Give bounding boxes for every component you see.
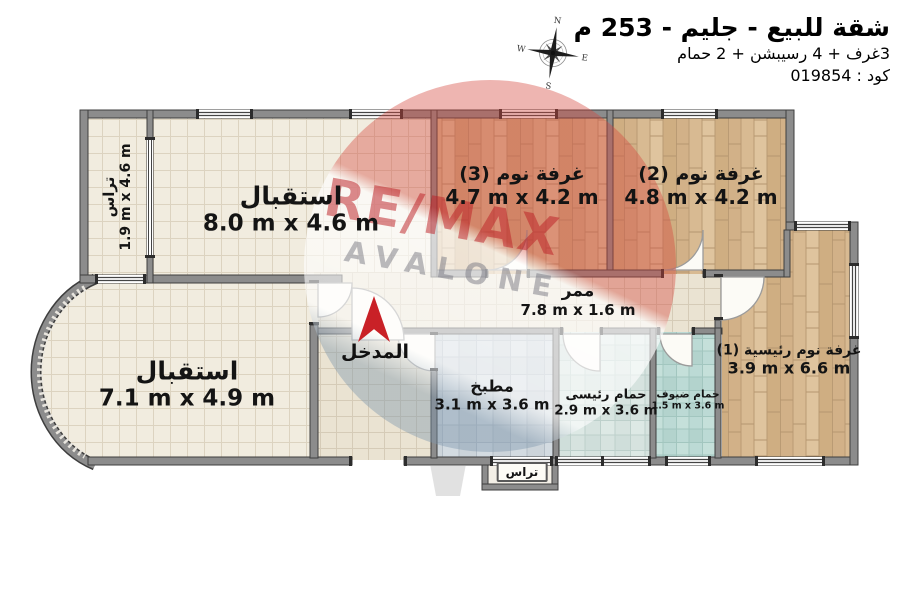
bath-main-label: حمام رئيسى 2.9 m x 3.6 m (554, 388, 657, 419)
room-name: استقبال (99, 357, 275, 386)
compass-west-label: W (516, 44, 526, 55)
title-block: شقة للبيع - جليم - 253 م 3غرف + 4 رسيبشن… (574, 12, 890, 86)
reception-bottom-label: استقبال 7.1 m x 4.9 m (99, 357, 275, 412)
bedroom2-label: غرفة نوم (2) 4.8 m x 4.2 m (624, 163, 777, 209)
floor-plan-page: N E S W RE/MAX AVALONE شقة للبيع - جليم … (0, 0, 900, 599)
bedroom3-label: غرفة نوم (3) 4.7 m x 4.2 m (445, 163, 598, 209)
room-dims: 7.8 m x 1.6 m (521, 301, 636, 319)
room-dims: 7.1 m x 4.9 m (99, 386, 275, 412)
room-name: استقبال (203, 182, 379, 211)
room-name: ممر (521, 281, 636, 301)
room-dims: 3.1 m x 3.6 m (435, 396, 550, 414)
room-name: حمام رئيسى (554, 388, 657, 403)
page-subtitle: 3غرف + 4 رسيبشن + 2 حمام (574, 43, 890, 65)
reception-top-label: استقبال 8.0 m x 4.6 m (203, 182, 379, 237)
room-dims: 8.0 m x 4.6 m (203, 211, 379, 237)
room-name: غرفة نوم (2) (624, 163, 777, 185)
room-dims: 4.8 m x 4.2 m (624, 185, 777, 209)
room-name: حمام ضيوف (652, 389, 725, 401)
room-name: غرفة نوم (3) (445, 163, 598, 185)
page-title: شقة للبيع - جليم - 253 م (574, 12, 890, 43)
bath-guest-label: حمام ضيوف 1.5 m x 3.6 m (652, 389, 725, 412)
listing-code: كود : 019854 (574, 65, 890, 87)
room-dims: 3.9 m x 6.6 m (717, 359, 862, 378)
room-name: تراس (100, 143, 118, 250)
room-dims: 4.7 m x 4.2 m (445, 185, 598, 209)
room-dims: 1.5 m x 3.6 m (652, 401, 725, 412)
kitchen-label: مطبخ 3.1 m x 3.6 m (435, 377, 550, 414)
master-bedroom-label: غرفة نوم رئيسية (1) 3.9 m x 6.6 m (717, 343, 862, 378)
terrace-bottom-label: تراس (497, 462, 548, 482)
terrace-left-label: تراس 1.9 m x 4.6 m (100, 143, 134, 250)
room-dims: 2.9 m x 3.6 m (554, 403, 657, 419)
room-name: مطبخ (435, 377, 550, 396)
compass-north-label: N (553, 16, 562, 27)
corridor-label: ممر 7.8 m x 1.6 m (521, 281, 636, 319)
entrance-label: المدخل (341, 341, 409, 363)
room-name: غرفة نوم رئيسية (1) (717, 343, 862, 359)
room-dims: 1.9 m x 4.6 m (118, 143, 134, 250)
